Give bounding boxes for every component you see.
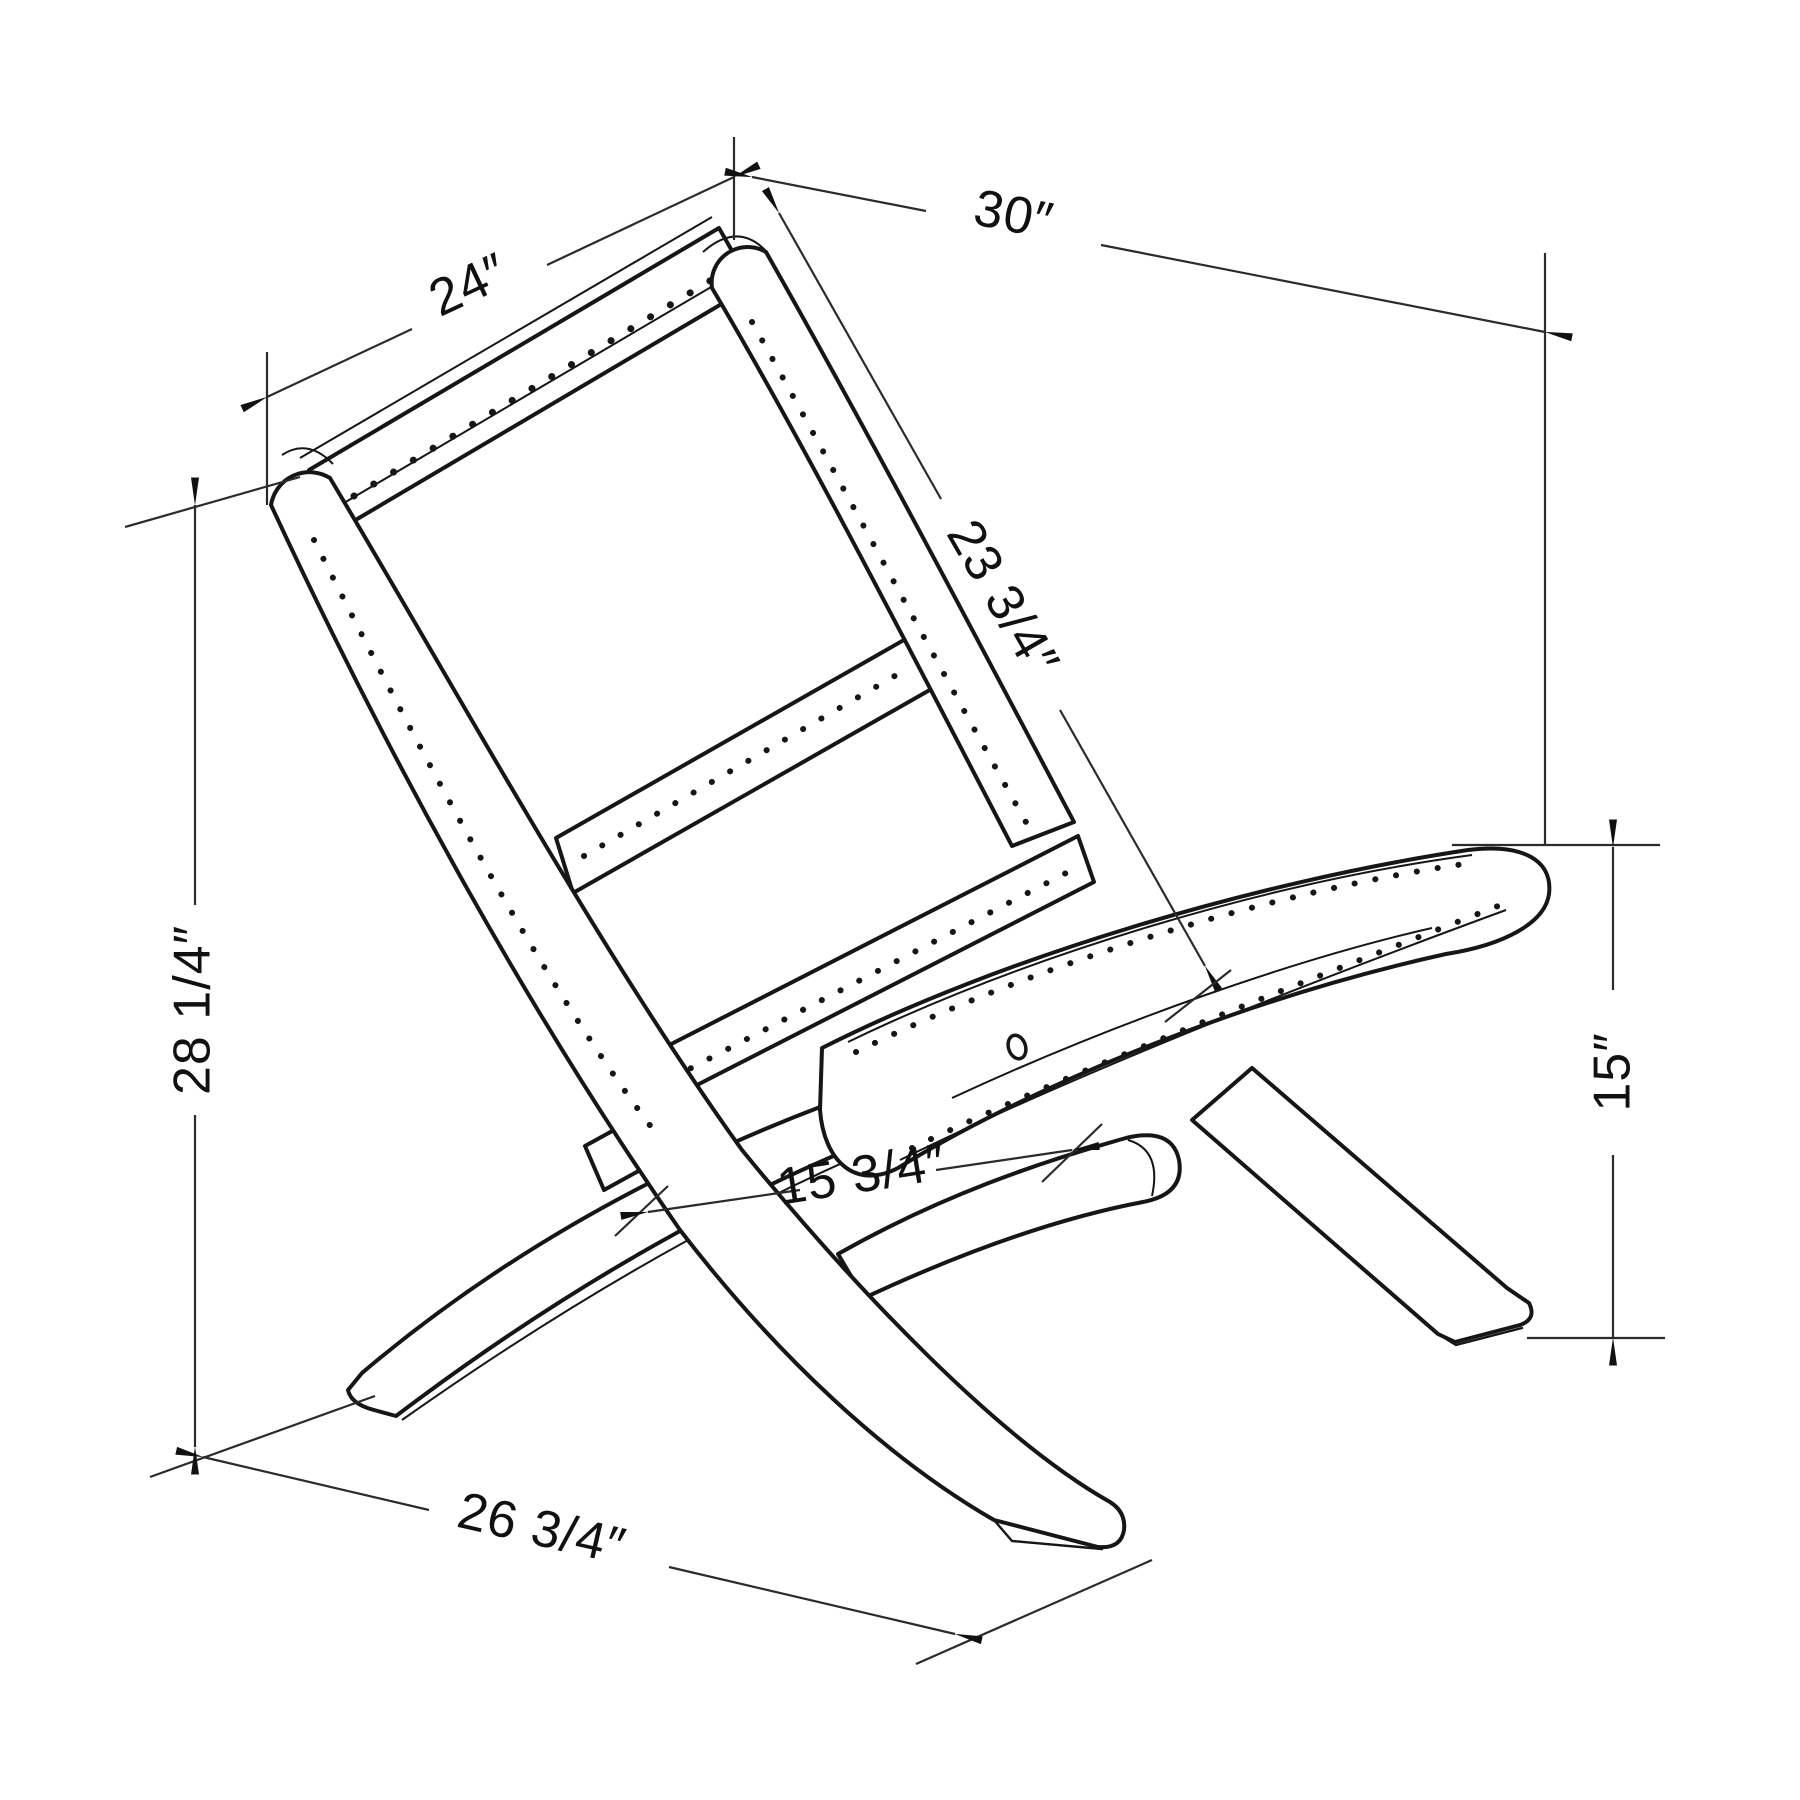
dim-label-15: 15″ [1584,1032,1642,1111]
backrest-mid-rail [556,632,935,893]
ext-line [150,1396,375,1477]
dim-label-30: 30″ [969,179,1058,251]
dim-label-24: 24″ [420,242,516,328]
dim-label-28-14: 28 1/4″ [164,925,222,1095]
dim-line [1101,245,1545,332]
dim-line [203,1457,429,1510]
dim-line [267,329,412,397]
dim-line [752,177,926,211]
chair-drawing [271,217,1549,1549]
dim-line [669,1567,955,1634]
seat [820,849,1549,1176]
dimension-drawing: 24″ 30″ 23 3/4″ 28 1/4″ 15 3/4″ 26 3/4″ [0,0,1800,1800]
dim-label-26-34: 26 3/4″ [452,1481,631,1576]
ext-line [916,1560,1152,1664]
drawing-canvas: 24″ 30″ 23 3/4″ 28 1/4″ 15 3/4″ 26 3/4″ [0,0,1800,1800]
rear-right-leg [1192,1068,1532,1342]
